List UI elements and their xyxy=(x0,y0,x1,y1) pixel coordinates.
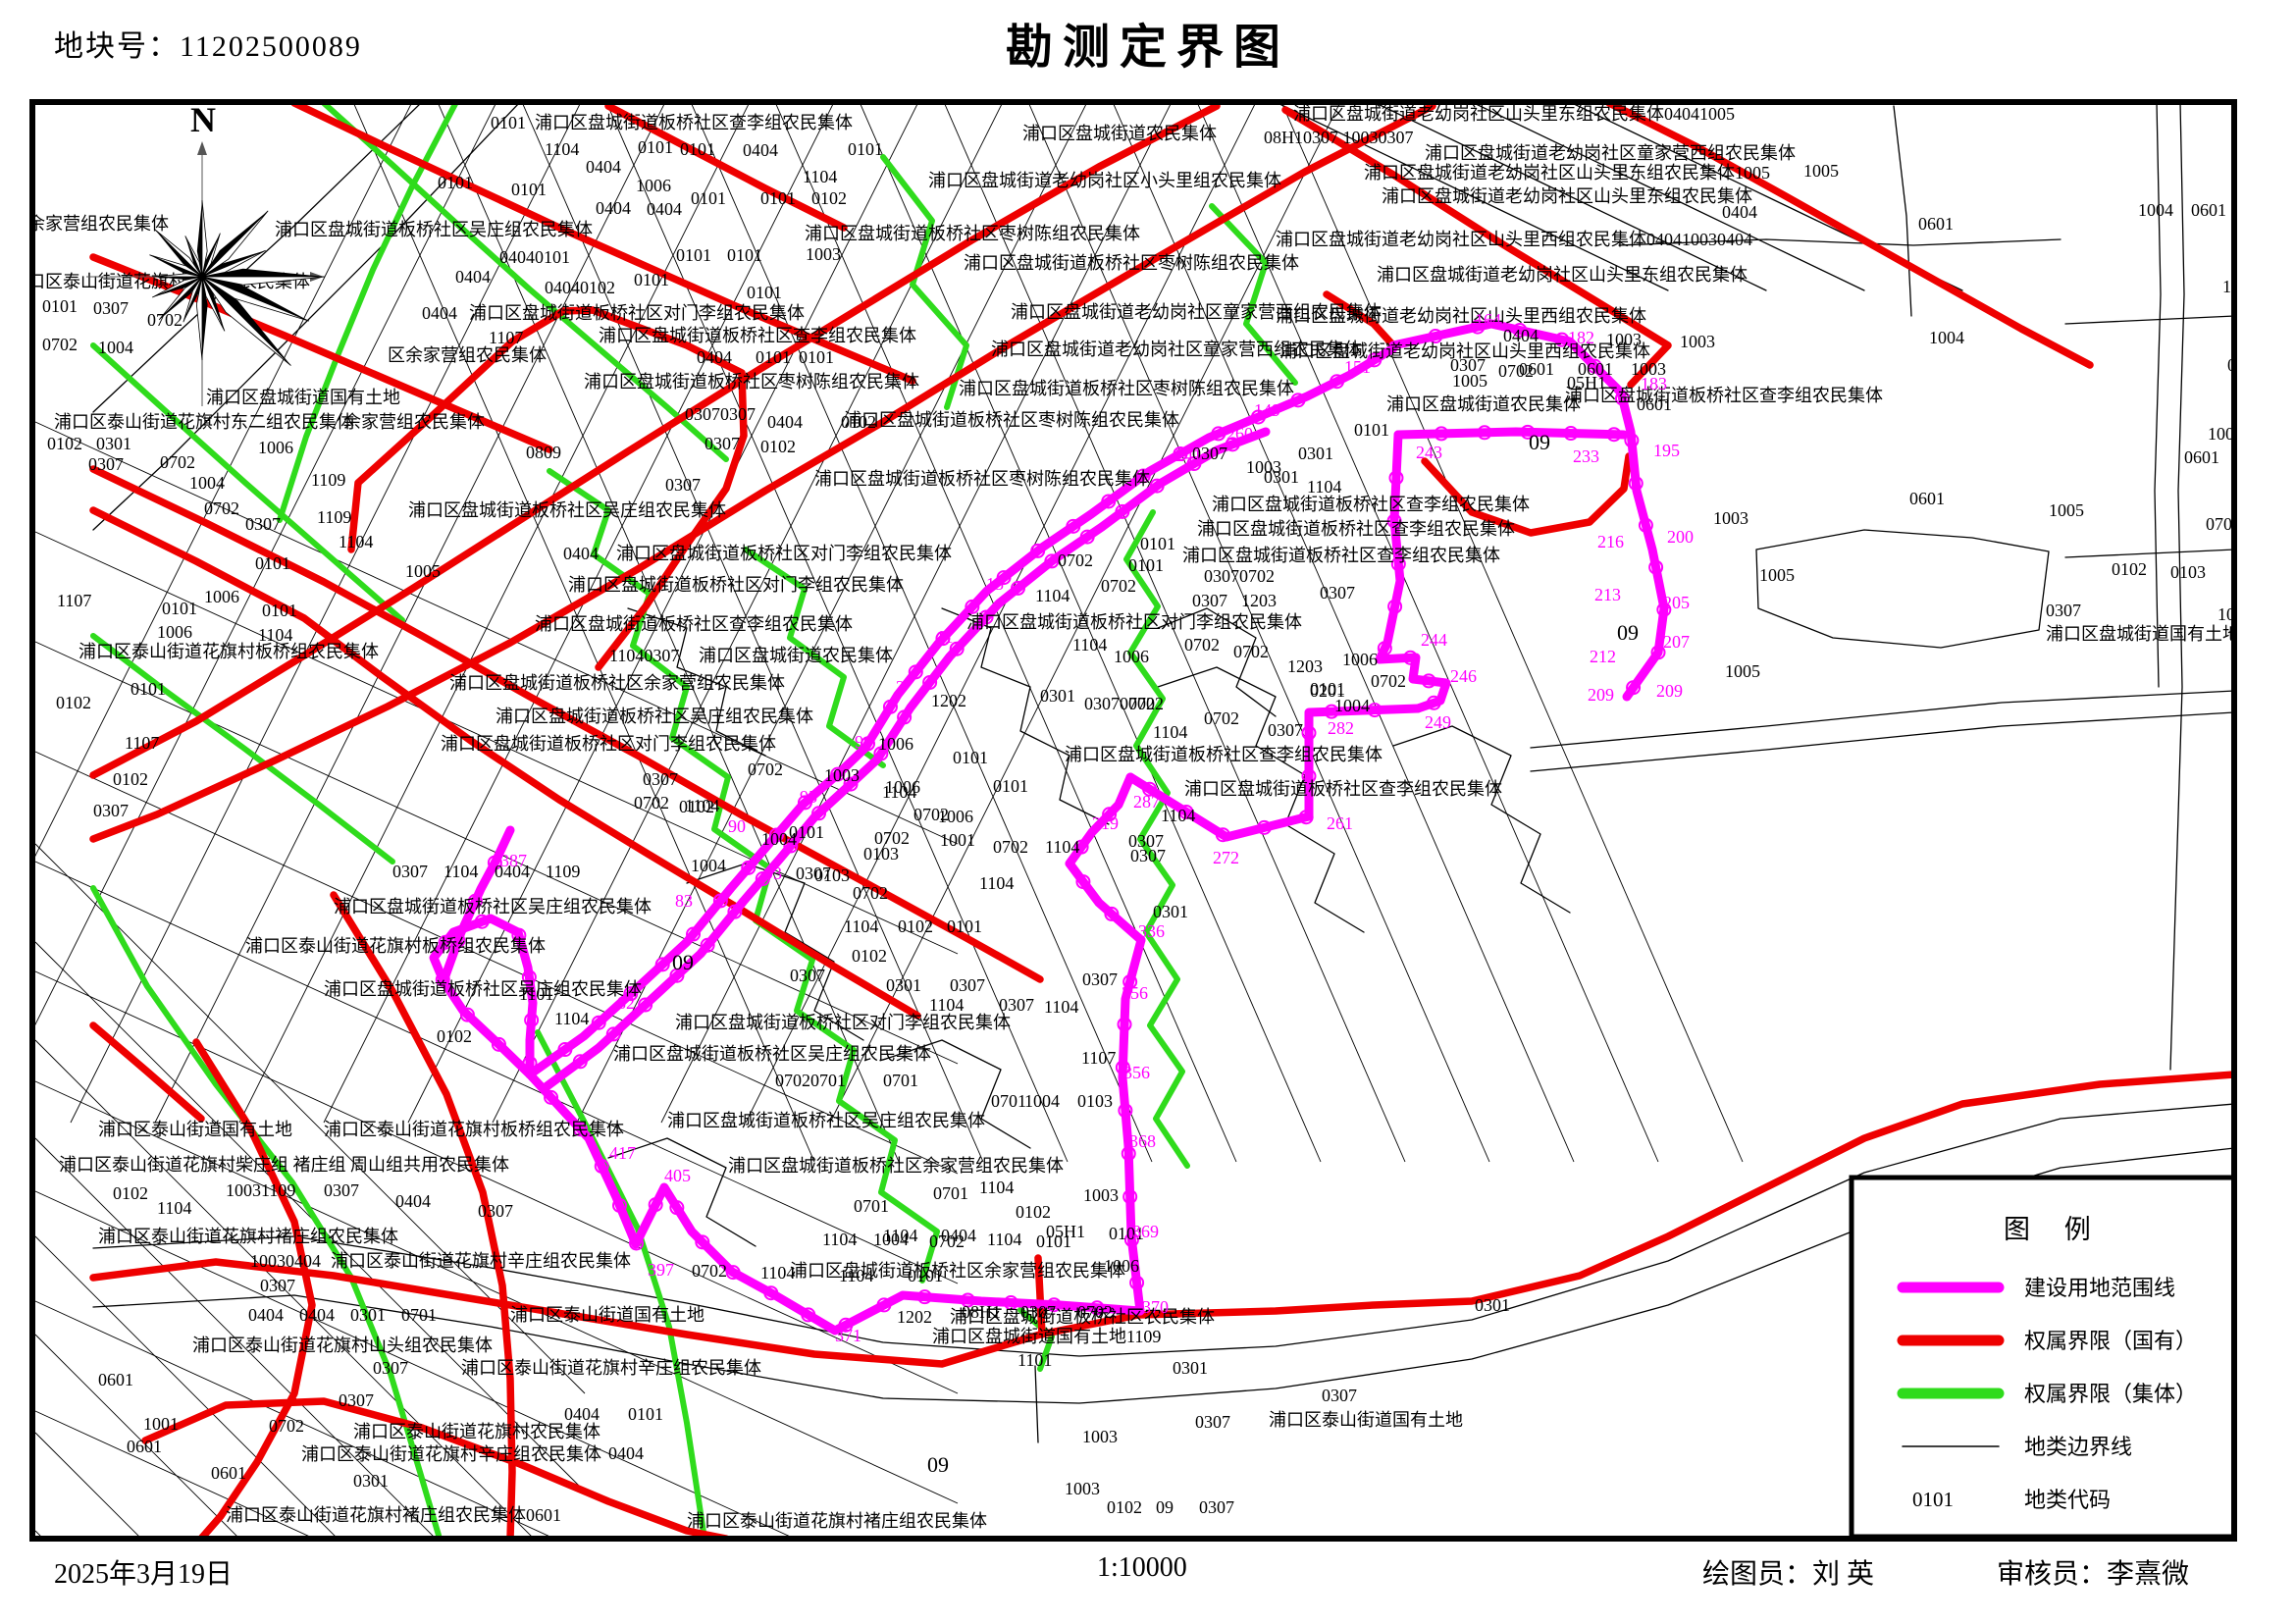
map-label: 浦口区泰山街道花旗村柴庄组 褚庄组 周山组共用农民集体 xyxy=(59,1155,509,1175)
landtype-boundary-line xyxy=(1035,1366,1038,1442)
map-label: 1104 xyxy=(685,796,719,815)
map-label: 浦口区泰山街道国有土地 xyxy=(1269,1410,1463,1430)
map-label: 0101 xyxy=(42,296,78,316)
map-label: 0301 xyxy=(886,975,921,995)
map-label: 0404 xyxy=(455,267,491,287)
map-label: 1104 xyxy=(554,1009,589,1028)
map-scale: 1:10000 xyxy=(1097,1552,1187,1584)
map-label: 浦口区盘城街道板桥社区枣树陈组农民集体 xyxy=(959,379,1294,398)
map-label: 1104 xyxy=(545,139,579,159)
map-label: 0404 xyxy=(395,1191,431,1211)
map-label: 浦口区盘城街道老幼岗社区山头里东组农民集体 xyxy=(1377,265,1748,285)
map-label: 09 xyxy=(1529,430,1550,454)
map-label: 0404 xyxy=(647,199,682,219)
map-label: 0307 xyxy=(478,1201,513,1221)
map-label: 0702 xyxy=(1101,576,1136,596)
map-label: 0702 xyxy=(42,335,78,354)
boundary-point-number: 212 xyxy=(1590,647,1616,666)
map-label: 0702 xyxy=(993,837,1028,857)
map-label: 1004 xyxy=(1024,1091,1060,1111)
map-label: 0702 xyxy=(1498,361,1534,381)
map-label: 0307 xyxy=(1322,1386,1357,1405)
map-label: 0307 xyxy=(704,434,740,453)
boundary-point-number: 164 xyxy=(1475,310,1501,330)
map-label: 0101 xyxy=(1128,555,1164,575)
map-label: 0301 xyxy=(1173,1358,1208,1378)
map-label: 1004 xyxy=(761,829,797,849)
map-label: 1003 xyxy=(1083,1185,1119,1205)
map-label: 1006 xyxy=(258,438,293,457)
map-label: 浦口区盘城街道板桥社区查李组农民集体 xyxy=(599,326,916,345)
map-label: 0102 xyxy=(1016,1202,1051,1222)
map-label: 浦口区盘城街道农民集体 xyxy=(1386,394,1581,414)
map-label: 浦口区盘城街道板桥社区对门李组农民集体 xyxy=(441,734,776,754)
map-label: 1202 xyxy=(897,1307,932,1327)
map-label: 浦口区泰山街道花旗村板桥组农民集体 xyxy=(78,642,379,661)
boundary-point-number: 397 xyxy=(648,1260,674,1280)
map-label: 1001 xyxy=(940,830,975,850)
map-label: 0102 xyxy=(437,1026,472,1046)
boundary-point-number: 287 xyxy=(1133,792,1160,812)
map-label: 浦口区盘城街道板桥社区查李组农民集体 xyxy=(535,113,853,132)
legend: 图 例建设用地范围线权属界限（国有）权属界限（集体）地类边界线0101地类代码 xyxy=(1852,1178,2234,1537)
map-label: 浦口区盘城街道板桥社区吴庄组农民集体 xyxy=(613,1044,931,1064)
map-label: 1004 xyxy=(2222,277,2258,296)
map-label: 1005 xyxy=(1759,565,1795,585)
map-label: 0702 xyxy=(692,1261,727,1281)
map-label: 0702 xyxy=(1371,671,1406,691)
boundary-point-number: 282 xyxy=(1328,718,1354,738)
map-label: 浦口区盘城街道农民集体 xyxy=(1022,124,1217,143)
map-label: 0307 xyxy=(2046,601,2081,620)
map-label: 浦口区泰山街道花旗村板桥组农民集体 xyxy=(324,1120,624,1139)
map-label: 浦口区盘城街道老幼岗社区山头里西组农民集体 xyxy=(1276,306,1646,326)
map-label: 09 xyxy=(927,1452,949,1477)
boundary-point-number: 216 xyxy=(1597,532,1624,551)
boundary-point-number: 209 xyxy=(1588,685,1614,705)
map-label: 1004 xyxy=(189,473,225,493)
map-label: 0601 xyxy=(98,1370,133,1389)
map-label: 0301 xyxy=(96,434,131,453)
map-label: 0101 xyxy=(438,173,473,192)
boundary-point-number: 15 xyxy=(986,574,1004,594)
map-label: 0101 xyxy=(993,776,1028,796)
map-label: 浦口区泰山街道花旗村辛庄组农民集体 xyxy=(331,1251,631,1271)
map-label: 0307 xyxy=(1130,846,1166,865)
map-label: 1003 xyxy=(1082,1427,1118,1446)
legend-title: 图 例 xyxy=(2004,1215,2105,1244)
map-label: 1104 xyxy=(979,1178,1014,1197)
boundary-point-number: 195 xyxy=(1653,441,1680,460)
map-label: 0601 xyxy=(1909,489,1945,508)
north-label: N xyxy=(190,100,216,139)
map-label: 0307 xyxy=(1320,583,1355,602)
map-label: 0102 xyxy=(811,188,847,208)
map-label: 11040307 xyxy=(609,646,679,665)
map-label: 1003 xyxy=(1680,332,1715,351)
map-label: 0701 xyxy=(933,1183,968,1203)
map-label: 0103 xyxy=(1077,1091,1113,1111)
map-label: 浦口区盘城街道老幼岗社区山头里东组农民集体04041005 xyxy=(1293,104,1735,124)
landtype-boundary-line xyxy=(1158,667,1364,932)
map-label: 1004 xyxy=(2138,200,2173,220)
map-label: 07020701 xyxy=(775,1071,846,1090)
map-label: 浦口区盘城街道板桥社区枣树陈组农民集体 xyxy=(805,224,1140,243)
map-label: 浦口区盘城街道板桥社区查李组农民集体 xyxy=(1197,519,1515,539)
boundary-point-number: 96 xyxy=(855,732,872,752)
map-label: 0101 xyxy=(953,748,988,767)
map-label: 0101 xyxy=(628,1404,663,1424)
map-label: 0404 xyxy=(596,198,631,218)
boundary-point-number: 387 xyxy=(500,851,527,870)
boundary-point-number: 249 xyxy=(1425,712,1451,732)
map-label: 0702 xyxy=(634,793,669,812)
map-label: 1101 xyxy=(1018,1350,1052,1370)
map-label: 0102 xyxy=(47,434,82,453)
map-label: 0404 xyxy=(608,1443,644,1463)
boundary-point-number: 2 xyxy=(896,677,905,697)
reviewer-label: 审核员：李熹微 xyxy=(1997,1552,2189,1592)
map-label: 浦口区盘城街道国有土地 xyxy=(206,388,400,407)
map-label: 1005 xyxy=(1725,661,1760,681)
landtype-boundary-line xyxy=(1894,106,1911,316)
map-label: 1107 xyxy=(1081,1048,1116,1068)
map-label: 1104 xyxy=(1153,722,1187,742)
map-label: 1104 xyxy=(1045,837,1079,857)
map-label: 1003 xyxy=(806,244,841,264)
map-label: 1003 xyxy=(824,765,860,785)
map-label: 1104 xyxy=(1161,806,1195,825)
map-label: 0307 xyxy=(1082,969,1118,989)
map-label: 0701 xyxy=(883,1071,918,1090)
boundary-point-number: 368 xyxy=(1129,1131,1156,1151)
map-label: 08H10307 10030307 xyxy=(1264,128,1414,147)
map-label: 0101 xyxy=(638,137,673,157)
map-label: 浦口区泰山街道国有土地 xyxy=(98,1120,292,1139)
map-label: 0102 xyxy=(1107,1497,1142,1517)
map-label: 0702 xyxy=(204,498,239,518)
boundary-point-number: 233 xyxy=(1573,446,1599,466)
map-label: 浦口区盘城街道板桥社区吴庄组农民集体 xyxy=(667,1111,985,1130)
map-label: 1107 xyxy=(57,591,91,610)
map-label: 浦口区泰山街道花旗村褚庄组农民集体0601 xyxy=(226,1505,561,1525)
map-label: 0201 xyxy=(1310,681,1345,701)
map-label: 浦口区泰山街道花旗村板桥组农民集体 xyxy=(245,936,546,956)
map-label: 1104 xyxy=(1072,635,1107,655)
map-label: 1104 xyxy=(1307,477,1341,497)
map-label: 0103 xyxy=(2170,562,2206,582)
map-label: 浦口区盘城街道国有土地1109 xyxy=(932,1327,1161,1346)
legend-item-label: 建设用地范围线 xyxy=(2024,1276,2175,1300)
map-label: 0307 xyxy=(1192,591,1227,610)
map-label: 1004 xyxy=(1929,328,1964,347)
map-label: 0102 xyxy=(760,437,796,456)
drafter-label: 绘图员：刘 英 xyxy=(1702,1552,1874,1592)
map-label: 浦口区泰山街道花旗村山头组农民集体 xyxy=(192,1336,493,1355)
map-label: 1109 xyxy=(311,470,345,490)
map-label: 0701 xyxy=(854,1196,889,1216)
map-label: 0307 xyxy=(260,1276,295,1295)
map-label: 浦口区盘城街道老幼岗社区小头里组农民集体 xyxy=(928,171,1281,190)
map-label: 浦口区盘城街道板桥社区查李组农民集体 xyxy=(1184,779,1502,799)
boundary-point-number: 83 xyxy=(675,891,693,911)
map-label: 0301 xyxy=(1040,686,1075,706)
map-label: 浦口区盘城街道国有土地 xyxy=(2046,624,2240,644)
map-label: 1203 xyxy=(1241,591,1277,610)
map-label: 浦口区盘城街道板桥社区查李组农民集体 xyxy=(1065,745,1383,764)
boundary-point-number: 370 xyxy=(1142,1297,1169,1317)
map-label: 0702 xyxy=(1058,550,1093,570)
boundary-point-number: 82 xyxy=(617,993,635,1013)
map-label: 1003 xyxy=(1065,1479,1100,1498)
map-label: 0601 xyxy=(1918,214,1954,234)
map-label: 浦口区盘城街道板桥社区枣树陈组农民集体 xyxy=(584,372,919,392)
map-label: 1104 xyxy=(987,1230,1021,1249)
map-label: 浦口区盘城街道板桥社区余家营组农民集体 xyxy=(790,1261,1125,1281)
landtype-boundary-line xyxy=(2065,316,2234,324)
map-label: 0307 xyxy=(1195,1412,1230,1432)
map-label: 1004 xyxy=(2208,424,2243,444)
map-label: 0102 xyxy=(113,1183,148,1203)
map-label: 浦口区盘城街道板桥社区对门李组农民集体 xyxy=(966,612,1302,632)
map-label: 浦口区盘城街道板桥社区对门李组农民集体 xyxy=(568,575,904,595)
map-label: 0101 xyxy=(848,139,883,159)
map-label: 浦口区盘城街道板桥社区吴庄组农民集体 xyxy=(324,979,642,999)
map-label: 浦口区盘城街道板桥社区吴庄组农民集体 xyxy=(275,220,593,239)
map-label: 0101 xyxy=(634,270,669,289)
legend-item-label: 地类代码 xyxy=(2024,1488,2111,1512)
map-label: 0101 xyxy=(1140,534,1175,553)
map-label: 0307 xyxy=(373,1358,408,1378)
survey-map-canvas: 区余家营组农民集体浦口区泰山街道花旗村东二组农民集体01010307070207… xyxy=(0,0,2296,1624)
map-label: 0307 xyxy=(88,454,124,474)
map-label: 0101 xyxy=(511,180,547,199)
map-label: 浦口区盘城街道板桥社区枣树陈组农民集体 xyxy=(814,469,1150,489)
boundary-point-number: 371 xyxy=(835,1326,861,1345)
boundary-point-number: 209 xyxy=(1656,681,1683,701)
map-label: 0307 xyxy=(790,966,825,985)
landtype-boundary-line xyxy=(1756,530,2049,648)
map-label: 0101 xyxy=(262,601,297,620)
map-label: 0301 xyxy=(1298,444,1333,463)
map-label: 10030404 xyxy=(250,1251,321,1271)
map-label: 浦口区泰山街道国有土地 xyxy=(510,1305,704,1325)
map-label: 1109 xyxy=(546,862,580,881)
map-label: 浦口区盘城街道板桥社区吴庄组农民集体 xyxy=(334,897,652,917)
compass-rose: N xyxy=(86,100,325,406)
construction-boundary-line xyxy=(1398,432,1624,435)
map-label: 0404 xyxy=(1503,326,1539,345)
map-label: 1104 xyxy=(929,995,964,1015)
map-label: 0404 xyxy=(248,1305,284,1325)
map-label: 0307 xyxy=(1199,1497,1234,1517)
north-arrow-icon xyxy=(197,141,207,155)
map-label: 05H1 xyxy=(1046,1222,1085,1241)
map-label: 0101 xyxy=(162,599,197,618)
boundary-point-number: 149 xyxy=(1254,400,1280,420)
map-label: 0404 xyxy=(697,347,732,367)
map-label: 0404 xyxy=(586,157,621,177)
map-label: 0101 xyxy=(756,347,791,367)
boundary-point-number: 93 xyxy=(764,864,782,883)
map-label: 浦口区盘城街道老幼岗社区山头里东组农民集体 xyxy=(1382,186,1752,206)
landtype-boundary-line xyxy=(2170,102,2184,1070)
map-label: 余家营组农民集体 xyxy=(343,412,485,432)
map-label: 1001 xyxy=(143,1414,179,1434)
map-label: 0307 xyxy=(1268,720,1303,740)
map-label: 0307 xyxy=(93,298,129,318)
map-label: 1005 xyxy=(405,561,441,581)
map-label: 浦口区盘城街道板桥社区枣树陈组农民集体 xyxy=(964,253,1299,273)
boundary-point-number: 205 xyxy=(1663,593,1690,612)
map-label: 浦口区盘城街道农民集体 xyxy=(699,646,893,665)
map-label: 1104 xyxy=(803,167,837,186)
map-label: 浦口区盘城街道板桥社区查李组农民集体 xyxy=(1212,495,1530,514)
map-label: 0101 xyxy=(130,679,166,699)
landtype-boundary-line xyxy=(0,102,496,1123)
map-label: 浦口区盘城街道板桥社区余家营组农民集体 xyxy=(728,1156,1064,1176)
landtype-boundary-line xyxy=(2065,550,2234,557)
map-label: 1006 xyxy=(1114,647,1149,666)
map-label: 浦口区泰山街道花旗村农民集体 xyxy=(353,1422,600,1441)
map-label: 0307 xyxy=(999,995,1034,1015)
boundary-point-number: 90 xyxy=(728,816,746,836)
map-label: 1203 xyxy=(1287,656,1323,676)
map-label: 09 xyxy=(1156,1497,1174,1517)
map-label: 0307 xyxy=(339,1390,374,1410)
map-label: 1202 xyxy=(931,691,966,710)
map-label: 0809 xyxy=(526,443,561,462)
map-label: 1107 xyxy=(489,328,523,347)
boundary-point-number: 243 xyxy=(1416,443,1442,462)
map-label: 1006 xyxy=(938,807,973,826)
map-label: 1104 xyxy=(882,782,916,802)
map-label: 0102 xyxy=(2112,559,2147,579)
map-label: 09 xyxy=(1617,620,1639,645)
boundary-point-number: 244 xyxy=(1421,630,1447,650)
survey-map-page: 地块号：11202500089 勘测定界图 区余家营组农民集体浦口区泰山街道花旗… xyxy=(0,0,2296,1624)
map-label: 1104 xyxy=(822,1230,857,1249)
boundary-point-number: 95 xyxy=(800,787,817,807)
map-label: 浦口区盘城街道老幼岗社区童家营西组农民集体 xyxy=(1425,143,1796,163)
map-label: 浦口区盘城街道板桥社区吴庄组农民集体 xyxy=(496,707,813,726)
map-label: 1107 xyxy=(125,733,159,753)
map-label: 0702 xyxy=(1184,635,1220,655)
map-label: 浦口区泰山街道花旗村褚庄组农民集体 xyxy=(687,1511,987,1531)
map-date: 2025年3月19日 xyxy=(54,1552,233,1592)
map-label: 浦口区盘城街道板桥社区对门李组农民集体 xyxy=(616,544,952,563)
map-label: 浦口区泰山街道花旗村东二组农民集体 xyxy=(54,412,354,432)
map-label: 0702 xyxy=(1128,694,1164,713)
map-label: 1006 xyxy=(636,176,671,195)
map-label: 0702 xyxy=(1233,642,1269,661)
legend-code-sample: 0101 xyxy=(1912,1488,1954,1511)
map-label: 0702 xyxy=(853,883,888,903)
map-label: 0601 xyxy=(2191,200,2226,220)
boundary-point-number: 183 xyxy=(1641,374,1667,393)
map-label: 0601 xyxy=(127,1437,162,1456)
map-label: 1006 xyxy=(878,734,913,754)
map-label: 浦口区泰山街道花旗村辛庄组农民集体 xyxy=(301,1444,601,1464)
map-label: 0301 xyxy=(1475,1295,1510,1315)
boundary-point-number: 151 xyxy=(1344,357,1371,377)
boundary-point-number: 417 xyxy=(609,1143,636,1163)
landtype-boundary-line xyxy=(1393,726,1570,913)
map-label: 0101 xyxy=(691,188,726,208)
map-label: 0307 xyxy=(392,862,428,881)
boundary-point-number: 319 xyxy=(1092,813,1119,833)
map-label: 0102 xyxy=(56,693,91,712)
map-label: 0307 xyxy=(93,801,129,820)
map-label: 0702 xyxy=(160,452,195,472)
map-label: 浦口区盘城街道老幼岗社区山头里东组农民集体1005 xyxy=(1364,163,1770,183)
boundary-point-number: 213 xyxy=(1594,585,1621,604)
map-label: 1004 xyxy=(691,856,726,875)
map-label: 09 xyxy=(672,950,694,974)
boundary-point-number: 356 xyxy=(1122,983,1148,1003)
map-label: 0103 xyxy=(814,865,850,885)
map-label: 0102 xyxy=(113,769,148,789)
boundary-point-number: 356 xyxy=(1123,1063,1150,1082)
boundary-point-number: 272 xyxy=(1213,848,1239,867)
map-label: 1005 xyxy=(1803,161,1839,181)
map-label: 1003 xyxy=(1713,508,1748,528)
map-label: 浦口区泰山街道花旗村辛庄组农民集体 xyxy=(461,1358,761,1378)
map-label: 1006 xyxy=(1342,650,1378,669)
map-label: 0404 xyxy=(563,544,599,563)
landtype-boundary-line xyxy=(1531,712,2234,771)
map-label: 0101 xyxy=(1354,420,1389,440)
map-label: 10031109 xyxy=(226,1180,295,1200)
map-label: 0307 xyxy=(643,769,678,789)
map-label: 0404 xyxy=(422,303,457,323)
map-label: 0101 xyxy=(255,553,290,573)
boundary-point-number: 182 xyxy=(1568,328,1594,347)
map-label: 0301 xyxy=(1153,902,1188,921)
map-label: 0404 xyxy=(299,1305,335,1325)
legend-item-label: 权属界限（集体） xyxy=(2024,1382,2197,1406)
map-label: 03070702 xyxy=(1204,566,1275,586)
map-label: 1104 xyxy=(1035,586,1070,605)
map-label: 0701 xyxy=(991,1091,1026,1111)
map-label: 0601 xyxy=(2184,447,2219,467)
map-label: 0701 xyxy=(401,1305,437,1325)
map-label: 04040102 xyxy=(545,278,615,297)
boundary-point-number: 200 xyxy=(1667,527,1694,547)
boundary-point-number: 207 xyxy=(1663,632,1690,652)
map-label: 浦口区泰山街道花旗村褚庄组农民集体 xyxy=(98,1227,398,1246)
map-label: 0101 xyxy=(680,139,715,159)
map-label: 0404 xyxy=(941,1226,976,1245)
map-label: 0101 xyxy=(947,917,982,936)
map-label: 0102 xyxy=(852,946,887,966)
map-label: 浦口区盘城街道板桥社区查李组农民集体 xyxy=(1565,386,1883,405)
map-label: 0702 xyxy=(269,1416,304,1436)
map-label: 浦口区盘城街道板桥社区查李组农民集体 xyxy=(535,614,853,634)
map-label: 1104 xyxy=(883,1226,917,1245)
map-label: 1101 xyxy=(519,984,553,1004)
map-label: 0702 xyxy=(874,828,910,848)
map-label: 0101 xyxy=(727,245,762,265)
map-label: 区余家营组农民集体 xyxy=(388,345,547,365)
boundary-point-number: 260 xyxy=(1226,424,1253,444)
map-label: 1104 xyxy=(1044,997,1078,1017)
map-label: 0307 xyxy=(324,1180,359,1200)
map-label: 0404 xyxy=(767,412,803,432)
boundary-point-number: 11 xyxy=(936,627,953,647)
map-label: 03070307 xyxy=(685,404,756,424)
map-label: 1006 xyxy=(157,622,192,642)
